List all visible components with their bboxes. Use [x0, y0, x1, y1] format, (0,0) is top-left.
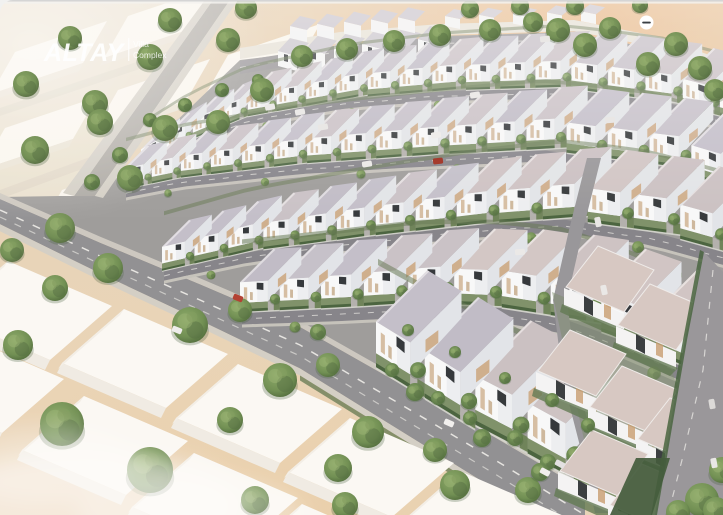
svg-text:ALTAY: ALTAY	[43, 39, 126, 67]
svg-text:Villa: Villa	[133, 39, 149, 49]
svg-text:Complex: Complex	[133, 50, 167, 60]
